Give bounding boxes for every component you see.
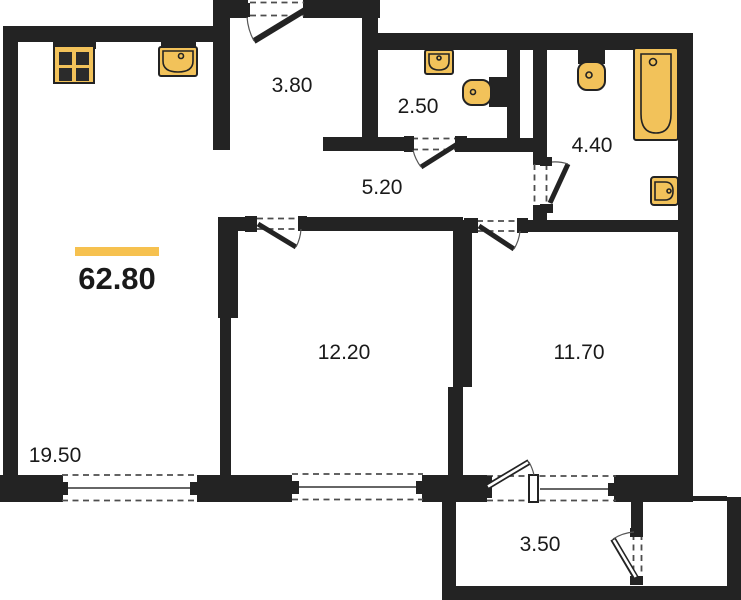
walls: [0, 0, 741, 600]
stove-icon: [53, 40, 96, 83]
wc-door: [404, 136, 467, 167]
room-area-label-corridor: 5.20: [362, 177, 403, 198]
bathroom-toilet-icon: [578, 50, 605, 90]
room-area-label-living-kitchen: 19.50: [29, 445, 82, 466]
window-living-room: [60, 475, 198, 501]
window-bedroom-1: [290, 474, 425, 500]
wc-sink-icon: [425, 50, 453, 74]
bathroom-sink-icon: [651, 177, 678, 205]
floor-plan-canvas: 62.80 3.80 2.50 4.40 5.20 19.50 12.20 11…: [0, 0, 741, 600]
room-area-label-balcony: 3.50: [520, 534, 561, 555]
bathroom-door: [535, 157, 569, 213]
window-bedroom-2: [487, 476, 617, 501]
entrance-door: [243, 3, 305, 42]
balcony-door: [482, 462, 538, 502]
total-area-underline: [75, 247, 159, 256]
bedroom-1-door: [245, 216, 307, 247]
floor-plan-drawing: [0, 0, 741, 600]
room-area-label-bedroom-1: 12.20: [318, 342, 371, 363]
room-area-label-wc: 2.50: [398, 96, 439, 117]
wc-toilet-icon: [463, 77, 507, 107]
room-area-label-bedroom-2: 11.70: [554, 342, 605, 363]
balcony-partition-door: [613, 528, 643, 585]
room-area-label-entrance-hall: 3.80: [272, 75, 313, 96]
room-area-label-bathroom: 4.40: [572, 135, 613, 156]
bedroom-2-door: [464, 218, 528, 249]
total-area-label: 62.80: [78, 263, 156, 294]
bathtub-icon: [634, 48, 678, 140]
kitchen-sink-icon: [159, 40, 197, 76]
